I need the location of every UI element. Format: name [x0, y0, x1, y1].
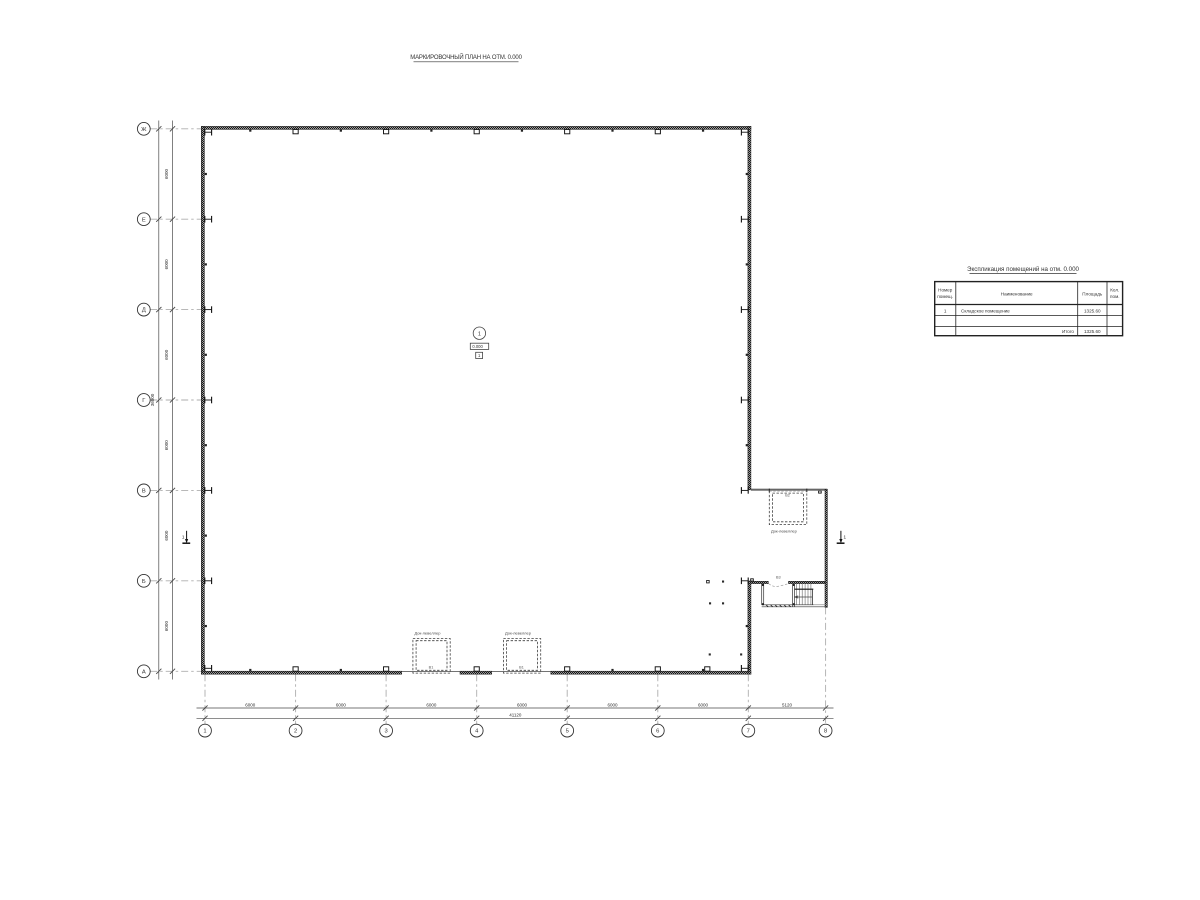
svg-text:В: В — [142, 489, 146, 495]
svg-text:Док-левеллер: Док-левеллер — [771, 529, 798, 534]
svg-text:6000: 6000 — [245, 702, 256, 707]
svg-text:6000: 6000 — [426, 702, 437, 707]
svg-text:1: 1 — [478, 331, 481, 337]
svg-text:6000: 6000 — [164, 440, 169, 451]
svg-text:Экспликация помещений на отм.: Экспликация помещений на отм. 0.000 — [967, 266, 1080, 273]
svg-text:помещ.: помещ. — [937, 294, 953, 299]
svg-text:5120: 5120 — [782, 702, 793, 707]
svg-text:6: 6 — [656, 729, 659, 735]
svg-text:Док-левеллер: Док-левеллер — [415, 631, 442, 636]
svg-text:Кол.: Кол. — [1110, 288, 1119, 293]
svg-text:6000: 6000 — [164, 168, 169, 179]
svg-text:МАРКИРОВОЧНЫЙ ПЛАН НА ОТМ. 0.0: МАРКИРОВОЧНЫЙ ПЛАН НА ОТМ. 0.000 — [410, 53, 522, 61]
svg-text:1: 1 — [944, 308, 947, 313]
svg-text:Б: Б — [142, 579, 146, 585]
svg-text:Док-левеллер: Док-левеллер — [505, 631, 532, 636]
svg-text:Итого: Итого — [1062, 329, 1074, 334]
svg-text:Наименование: Наименование — [1001, 292, 1033, 297]
svg-text:В3: В3 — [776, 575, 781, 579]
svg-text:1325.60: 1325.60 — [1084, 329, 1101, 334]
svg-text:А: А — [142, 669, 146, 675]
svg-text:36000: 36000 — [150, 393, 155, 406]
svg-text:6000: 6000 — [164, 259, 169, 270]
svg-text:6000: 6000 — [607, 702, 618, 707]
svg-text:1325.60: 1325.60 — [1084, 308, 1101, 313]
svg-text:Д: Д — [142, 308, 146, 314]
svg-text:В1: В1 — [519, 666, 524, 670]
svg-text:Е: Е — [142, 217, 146, 223]
svg-text:Ж: Ж — [141, 127, 147, 133]
svg-text:6000: 6000 — [517, 702, 528, 707]
svg-text:Номер: Номер — [938, 288, 953, 293]
svg-text:Площадь: Площадь — [1082, 292, 1103, 297]
svg-text:Складское помещение: Складское помещение — [961, 308, 1010, 313]
svg-text:В2: В2 — [785, 494, 790, 498]
svg-text:8: 8 — [824, 729, 827, 735]
svg-text:6000: 6000 — [164, 621, 169, 632]
svg-text:7: 7 — [747, 729, 750, 735]
svg-text:1: 1 — [182, 535, 185, 540]
svg-text:0.000: 0.000 — [472, 344, 483, 349]
svg-text:1: 1 — [844, 535, 847, 540]
svg-text:2: 2 — [294, 729, 297, 735]
svg-text:41120: 41120 — [509, 713, 522, 718]
svg-text:6000: 6000 — [698, 702, 709, 707]
svg-text:6000: 6000 — [336, 702, 347, 707]
svg-text:5: 5 — [566, 729, 569, 735]
svg-text:3: 3 — [384, 729, 387, 735]
svg-text:пом.: пом. — [1110, 294, 1119, 299]
svg-text:6000: 6000 — [164, 349, 169, 360]
svg-text:6000: 6000 — [164, 530, 169, 541]
svg-text:1: 1 — [203, 729, 206, 735]
svg-text:В1: В1 — [429, 666, 434, 670]
